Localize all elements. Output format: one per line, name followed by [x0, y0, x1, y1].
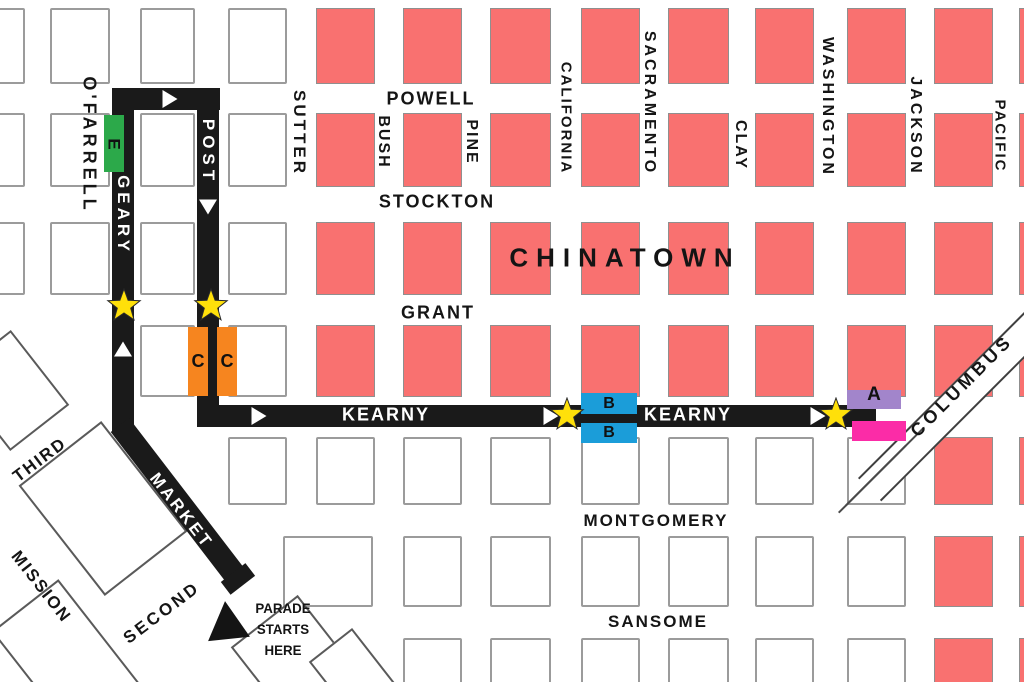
- city-block-chinatown: [1019, 638, 1024, 682]
- city-block: [668, 638, 729, 682]
- city-block: [403, 638, 462, 682]
- chinatown-region-label: CHINATOWN: [509, 243, 740, 274]
- star-marker: [106, 288, 142, 324]
- city-block-chinatown: [668, 8, 729, 84]
- parade-note-line-1: PARADE: [253, 598, 314, 619]
- city-block-chinatown: [490, 8, 551, 84]
- marker-stop-b-top-label: B: [603, 395, 615, 413]
- street-label-sacramento: SACRAMENTO: [640, 31, 658, 175]
- street-label-clay: CLAY: [731, 120, 749, 170]
- marker-stop-c-left-label: C: [192, 351, 205, 372]
- route-direction-arrow-down: [199, 200, 217, 215]
- city-block-chinatown: [847, 8, 906, 84]
- street-label-stockton: STOCKTON: [379, 192, 495, 213]
- marker-stop-e: E: [104, 115, 124, 172]
- street-label-powell: POWELL: [387, 89, 476, 110]
- city-block-chinatown: [1019, 8, 1024, 84]
- city-block: [755, 536, 814, 607]
- city-block: [581, 536, 640, 607]
- city-block-chinatown: [403, 325, 462, 397]
- city-block: [668, 536, 729, 607]
- city-block: [403, 536, 462, 607]
- city-block-chinatown: [1019, 437, 1024, 505]
- city-block: [140, 222, 195, 295]
- city-block-chinatown: [934, 222, 993, 295]
- marker-stop-c-right: C: [217, 327, 237, 396]
- city-block-chinatown: [755, 222, 814, 295]
- city-block: [0, 222, 25, 295]
- city-block-chinatown: [668, 325, 729, 397]
- star-marker: [193, 288, 229, 324]
- marker-stop-e-label: E: [104, 138, 124, 149]
- city-block: [847, 536, 906, 607]
- city-block-chinatown: [934, 113, 993, 187]
- city-block: [50, 222, 110, 295]
- city-block: [847, 638, 906, 682]
- city-block-chinatown: [316, 222, 375, 295]
- parade-note-line-2: STARTS: [253, 619, 314, 640]
- city-block: [140, 8, 195, 84]
- marker-stop-a-label: A: [867, 384, 881, 406]
- route-direction-arrow-up: [114, 342, 132, 357]
- city-block-chinatown: [316, 8, 375, 84]
- city-block-chinatown: [403, 222, 462, 295]
- marker-stop-c-left: C: [188, 327, 208, 396]
- city-block: [228, 222, 287, 295]
- city-block: [0, 8, 25, 84]
- city-block-chinatown: [581, 325, 640, 397]
- street-label-pine: PINE: [462, 119, 480, 164]
- street-label-montgomery: MONTGOMERY: [584, 511, 729, 531]
- city-block-chinatown: [1019, 113, 1024, 187]
- city-block: [403, 437, 462, 505]
- city-block-chinatown: [490, 325, 551, 397]
- city-block: [228, 113, 287, 187]
- marker-stop-pink: [852, 421, 906, 441]
- street-label-kearny: KEARNY: [342, 405, 430, 426]
- city-block: [228, 437, 287, 505]
- marker-stop-a: A: [847, 390, 901, 409]
- city-block: [581, 638, 640, 682]
- chinatown-parade-map: CHINATOWN PARADE STARTS HERE ECCBBAPOWEL…: [0, 0, 1024, 682]
- street-label-sutter: SUTTER: [289, 90, 309, 176]
- parade-start-note: PARADE STARTS HERE: [253, 598, 314, 661]
- city-block-chinatown: [581, 8, 640, 84]
- city-block-chinatown: [490, 113, 551, 187]
- street-label-washington: WASHINGTON: [818, 37, 836, 177]
- city-block-chinatown: [1019, 222, 1024, 295]
- city-block-chinatown: [934, 638, 993, 682]
- city-block-chinatown: [755, 325, 814, 397]
- street-label-california: CALIFORNIA: [558, 62, 575, 175]
- route-market-end-cap: [221, 563, 255, 595]
- city-block-chinatown: [934, 536, 993, 607]
- city-block: [140, 113, 195, 187]
- city-block-chinatown: [403, 113, 462, 187]
- city-block-chinatown: [755, 113, 814, 187]
- city-block-chinatown: [668, 113, 729, 187]
- city-block-chinatown: [316, 113, 375, 187]
- city-block: [490, 638, 551, 682]
- street-label-jackson: JACKSON: [906, 76, 924, 175]
- star-marker: [818, 397, 854, 433]
- city-block: [50, 8, 110, 84]
- street-label-post: POST: [198, 119, 218, 185]
- city-block: [140, 325, 195, 397]
- city-block-chinatown: [316, 325, 375, 397]
- street-label-ofarrell: O'FARRELL: [79, 76, 100, 213]
- street-label-second: SECOND: [120, 578, 205, 649]
- city-block-chinatown: [581, 113, 640, 187]
- star-marker: [549, 397, 585, 433]
- city-block: [668, 437, 729, 505]
- city-block: [490, 536, 551, 607]
- street-label-geary: GEARY: [113, 175, 133, 255]
- parade-note-line-3: HERE: [253, 640, 314, 661]
- city-block: [0, 113, 25, 187]
- city-block-chinatown: [847, 222, 906, 295]
- city-block-chinatown: [934, 8, 993, 84]
- street-label-pacific: PACIFIC: [992, 100, 1009, 173]
- route-direction-arrow-right: [252, 407, 267, 425]
- street-label-bush: BUSH: [374, 115, 392, 168]
- marker-stop-b-bottom: B: [581, 423, 637, 443]
- city-block: [228, 8, 287, 84]
- city-block-chinatown: [403, 8, 462, 84]
- city-block: [755, 437, 814, 505]
- marker-stop-b-top: B: [581, 393, 637, 414]
- street-label-kearny: KEARNY: [644, 405, 732, 426]
- route-direction-arrow-right: [163, 90, 178, 108]
- city-block-chinatown: [755, 8, 814, 84]
- city-block: [316, 437, 375, 505]
- city-block: [490, 437, 551, 505]
- city-block-chinatown: [847, 113, 906, 187]
- city-block-chinatown: [934, 437, 993, 505]
- parade-start-triangle: [204, 599, 250, 641]
- route-kearny: [197, 405, 876, 427]
- marker-stop-b-bottom-label: B: [603, 424, 615, 442]
- city-block: [581, 437, 640, 505]
- marker-stop-c-right-label: C: [221, 351, 234, 372]
- street-label-grant: GRANT: [401, 303, 475, 324]
- city-block: [755, 638, 814, 682]
- city-block-chinatown: [1019, 536, 1024, 607]
- street-label-sansome: SANSOME: [608, 612, 708, 632]
